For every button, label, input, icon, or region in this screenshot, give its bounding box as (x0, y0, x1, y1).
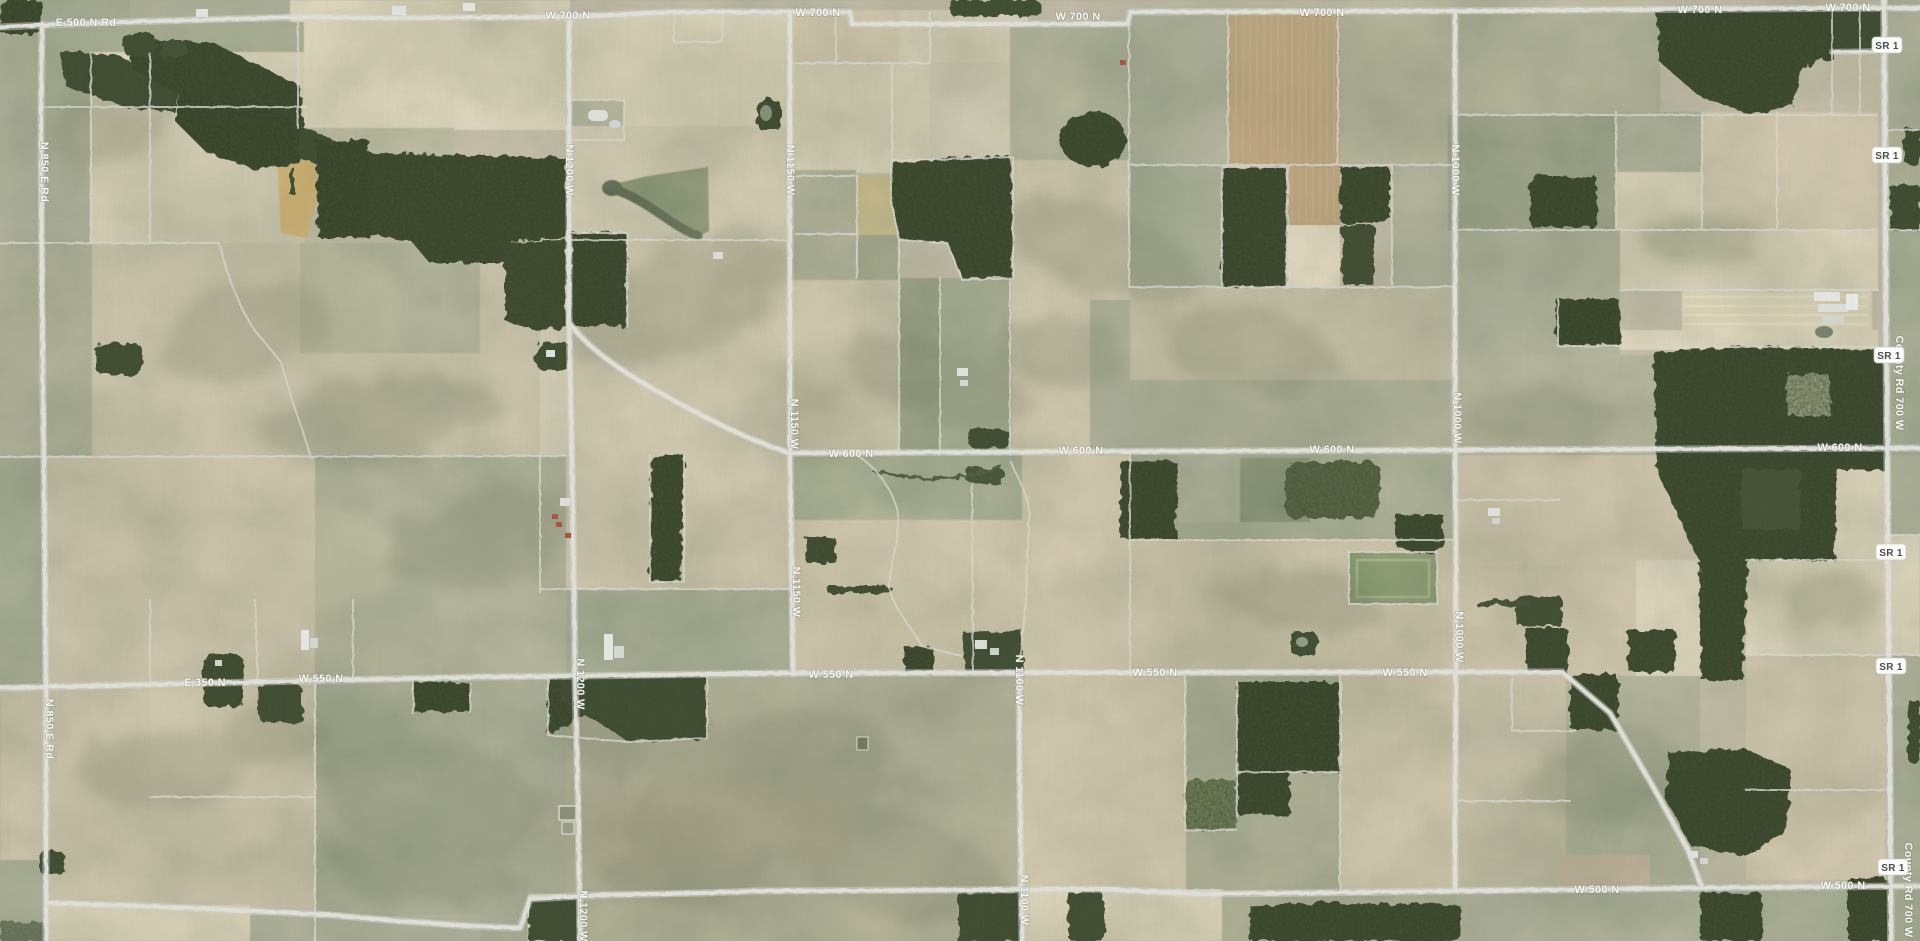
svg-text:N 1200 W: N 1200 W (574, 658, 586, 710)
svg-text:SR 1: SR 1 (1875, 151, 1899, 162)
svg-text:SR 1: SR 1 (1879, 662, 1903, 673)
svg-text:N 1100 W: N 1100 W (1013, 655, 1025, 706)
svg-text:N 850 E Rd: N 850 E Rd (43, 699, 55, 759)
svg-text:W 600 N: W 600 N (1059, 445, 1104, 457)
svg-text:W 700 N: W 700 N (1056, 11, 1101, 23)
svg-text:W 700 N: W 700 N (1826, 2, 1871, 14)
svg-text:E 500 N Rd: E 500 N Rd (56, 17, 116, 29)
svg-text:W 600 N: W 600 N (829, 448, 874, 460)
svg-text:N 1000 W: N 1000 W (1453, 611, 1465, 663)
svg-text:W 500 N: W 500 N (1575, 884, 1620, 896)
svg-text:N 1100 W: N 1100 W (1018, 875, 1030, 926)
svg-text:SR 1: SR 1 (1875, 41, 1899, 52)
svg-text:SR 1: SR 1 (1881, 863, 1905, 874)
svg-text:W 700 N: W 700 N (546, 10, 591, 22)
svg-text:W 500 N: W 500 N (1821, 880, 1866, 892)
svg-text:N 850 E Rd: N 850 E Rd (38, 142, 50, 202)
svg-text:W 550 N: W 550 N (809, 669, 854, 681)
svg-text:County Rd 700 W: County Rd 700 W (1902, 843, 1914, 938)
svg-text:N 1000 W: N 1000 W (1451, 392, 1463, 444)
svg-text:W 700 N: W 700 N (1678, 4, 1723, 16)
svg-text:N 1200 W: N 1200 W (563, 144, 575, 196)
svg-text:W 550 N: W 550 N (1383, 667, 1428, 679)
svg-text:N 1200 W: N 1200 W (577, 890, 589, 941)
svg-text:E 350 N: E 350 N (184, 677, 226, 689)
svg-text:W 550 N: W 550 N (299, 673, 344, 685)
svg-text:N 1150 W: N 1150 W (784, 145, 796, 196)
svg-text:W 600 N: W 600 N (1310, 444, 1355, 456)
svg-text:W 700 N: W 700 N (1300, 7, 1345, 19)
svg-text:SR 1: SR 1 (1877, 351, 1901, 362)
svg-text:W 550 N: W 550 N (1133, 667, 1178, 679)
svg-text:W 700 N: W 700 N (796, 7, 841, 19)
svg-text:N 1150 W: N 1150 W (790, 567, 802, 618)
svg-text:SR 1: SR 1 (1879, 548, 1903, 559)
svg-text:N 1000 W: N 1000 W (1449, 144, 1461, 196)
svg-text:W 600 N: W 600 N (1818, 442, 1863, 454)
svg-text:N 1150 W: N 1150 W (788, 399, 800, 450)
